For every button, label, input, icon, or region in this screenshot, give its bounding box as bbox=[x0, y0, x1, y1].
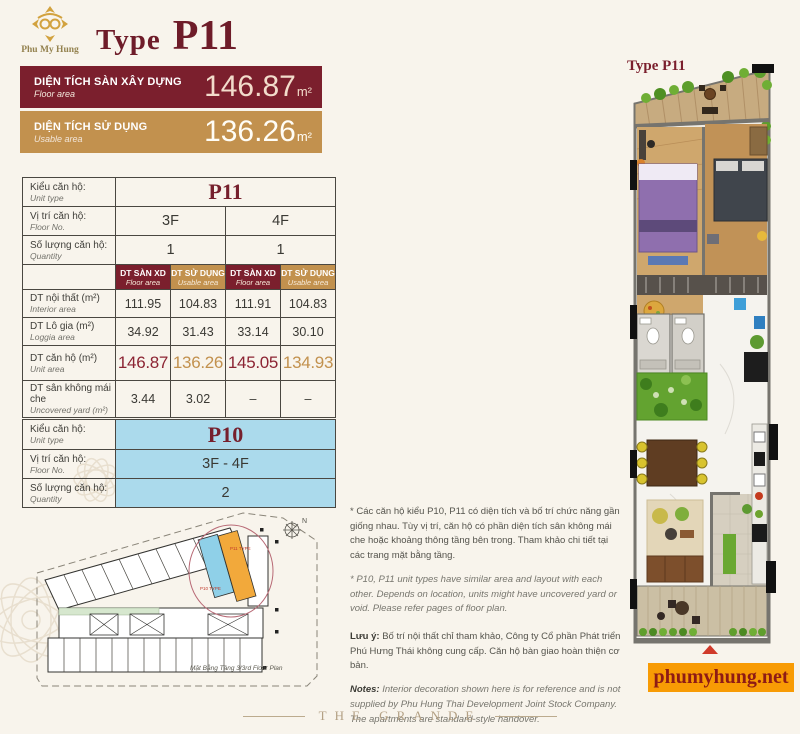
compass-north-label: N bbox=[302, 518, 307, 525]
footer-brand-text: THE GRANDE bbox=[319, 708, 482, 724]
p10-unit-tag: P10 TYPE bbox=[200, 586, 221, 591]
luu-y-paragraph: Lưu ý: Bố trí nội thất chỉ tham khảo, Cô… bbox=[350, 630, 624, 674]
bedside-rug bbox=[648, 256, 688, 265]
brochure-page: Phu My Hung Type P11 DIỆN TÍCH SÀN XÂY D… bbox=[0, 0, 800, 734]
row-label-vi: DT sân không mái che bbox=[30, 383, 111, 405]
desk-chair bbox=[647, 140, 655, 148]
footer-rule-left bbox=[243, 716, 305, 717]
row-label-vi: DT căn hộ (m²) bbox=[30, 353, 111, 364]
unit-type-label-cell: Kiểu căn hộ: Unit type bbox=[23, 178, 116, 207]
loggia-area-3f-usable: 31.43 bbox=[171, 318, 226, 346]
loggia-area-label-cell: DT Lô gia (m²) Loggia area bbox=[23, 318, 116, 346]
kitchen-plants bbox=[723, 534, 736, 574]
p10-floor-cell: 3F - 4F bbox=[116, 450, 336, 479]
col-header-vi: DT SỬ DỤNG bbox=[171, 268, 225, 278]
uncovered-yard-4f-usable: – bbox=[281, 381, 336, 418]
loggia-area-3f-floor: 34.92 bbox=[116, 318, 171, 346]
usable-area-label-en: Usable area bbox=[34, 134, 147, 144]
inner-garden bbox=[637, 373, 707, 420]
table-row: DT căn hộ (m²) Unit area 146.87 136.26 1… bbox=[23, 346, 336, 381]
p10-quantity-cell: 2 bbox=[116, 479, 336, 508]
living-room bbox=[647, 500, 703, 582]
loggia-area-4f-usable: 30.10 bbox=[281, 318, 336, 346]
notes-label: Notes: bbox=[350, 684, 380, 695]
unit-area-3f-floor: 146.87 bbox=[116, 346, 171, 381]
col-header-vi: DT SỬ DỤNG bbox=[281, 268, 335, 278]
interior-area-4f-floor: 111.91 bbox=[226, 290, 281, 318]
uncovered-yard-label-cell: DT sân không mái che Uncovered yard (m²) bbox=[23, 381, 116, 418]
p11-spec-table: Kiểu căn hộ: Unit type P11 Vị trí căn hộ… bbox=[22, 177, 336, 418]
usable-area-value: 136.26 m² bbox=[204, 117, 312, 147]
usable-area-number: 136.26 bbox=[204, 117, 296, 147]
p10-unit-type-value: P10 bbox=[116, 420, 336, 450]
website-link[interactable]: phumyhung.net bbox=[648, 663, 794, 692]
unit-type-label-cell: Kiểu căn hộ: Unit type bbox=[23, 420, 116, 450]
floor-overview-plan: P10 TYPE P11 TYPE N Mặt Bằng Tầng 3/3rd … bbox=[30, 508, 322, 698]
p10-spec-table: Kiểu căn hộ: Unit type P10 Vị trí căn hộ… bbox=[22, 419, 336, 508]
row-label-vi: DT nội thất (m²) bbox=[30, 293, 111, 304]
side-table bbox=[707, 234, 719, 244]
quantity-label-cell: Số lượng căn hộ: Quantity bbox=[23, 479, 116, 508]
note-paragraph-en: * P10, P11 unit types have similar area … bbox=[350, 573, 624, 617]
header-spacer-cell bbox=[23, 265, 116, 290]
entry-arrow bbox=[702, 645, 718, 654]
indoor-plant bbox=[750, 335, 764, 349]
unit-type-label-en: Unit type bbox=[30, 193, 111, 203]
phu-my-hung-emblem-icon bbox=[26, 6, 74, 42]
floor-no-label-vi: Vị trí căn hộ: bbox=[30, 211, 111, 222]
col-header-vi: DT SÀN XD bbox=[226, 268, 280, 278]
row-label-en: Unit area bbox=[30, 364, 111, 374]
quantity-label-vi: Số lượng căn hộ: bbox=[30, 483, 111, 494]
apartment-detail-plan bbox=[630, 64, 782, 664]
sofa bbox=[647, 556, 703, 582]
black-counter bbox=[744, 352, 768, 382]
col-header-vi: DT SÀN XD bbox=[116, 268, 170, 278]
col-header-usable-area-2: DT SỬ DỤNG Usable area bbox=[281, 265, 336, 290]
desk bbox=[639, 130, 646, 160]
floor-no-label-en: Floor No. bbox=[30, 465, 111, 475]
floor-no-label-cell: Vị trí căn hộ: Floor No. bbox=[23, 450, 116, 479]
unit-area-4f-floor: 145.05 bbox=[226, 346, 281, 381]
title-unit-code: P11 bbox=[173, 12, 238, 60]
floor-3f-cell: 3F bbox=[116, 207, 226, 236]
uncovered-yard-3f-floor: 3.44 bbox=[116, 381, 171, 418]
row-label-en: Uncovered yard (m²) bbox=[30, 405, 111, 415]
floor-no-label-vi: Vị trí căn hộ: bbox=[30, 454, 111, 465]
wardrobe bbox=[750, 127, 767, 155]
row-label-en: Loggia area bbox=[30, 332, 111, 342]
building-core bbox=[59, 608, 263, 638]
unit-type-label-vi: Kiểu căn hộ: bbox=[30, 424, 111, 435]
compass-icon bbox=[283, 521, 301, 539]
usable-area-bar: DIỆN TÍCH SỬ DỤNG Usable area 136.26 m² bbox=[20, 111, 322, 153]
table-row: DT nội thất (m²) Interior area 111.95 10… bbox=[23, 290, 336, 318]
floor-no-label-cell: Vị trí căn hộ: Floor No. bbox=[23, 207, 116, 236]
floor-area-value: 146.87 m² bbox=[204, 72, 312, 102]
row-label-vi: DT Lô gia (m²) bbox=[30, 321, 111, 332]
floor-area-label-vi: DIỆN TÍCH SÀN XÂY DỰNG bbox=[34, 76, 182, 88]
usable-area-unit: m² bbox=[297, 130, 312, 143]
quantity-label-en: Quantity bbox=[30, 251, 111, 261]
uncovered-yard-3f-usable: 3.02 bbox=[171, 381, 226, 418]
row-label-en: Interior area bbox=[30, 304, 111, 314]
stool bbox=[757, 231, 767, 241]
quantity-3f-cell: 1 bbox=[116, 236, 226, 265]
bottom-terrace bbox=[637, 586, 767, 636]
loggia-area-4f-floor: 33.14 bbox=[226, 318, 281, 346]
p11-unit-type-value: P11 bbox=[116, 178, 336, 207]
terrace-table bbox=[675, 601, 689, 615]
quantity-4f-cell: 1 bbox=[226, 236, 336, 265]
logo-wordmark: Phu My Hung bbox=[8, 45, 92, 55]
overview-caption: Mặt Bằng Tầng 3/3rd Floor Plan bbox=[190, 663, 283, 672]
bedroom-right bbox=[705, 124, 767, 275]
phu-my-hung-logo: Phu My Hung bbox=[8, 6, 92, 55]
col-header-floor-area-2: DT SÀN XD Floor area bbox=[226, 265, 281, 290]
usable-area-label-vi: DIỆN TÍCH SỬ DỤNG bbox=[34, 121, 147, 133]
page-title: Type P11 bbox=[96, 12, 238, 60]
bathrooms bbox=[637, 314, 704, 373]
col-header-en: Usable area bbox=[171, 278, 225, 287]
unit-area-label-cell: DT căn hộ (m²) Unit area bbox=[23, 346, 116, 381]
col-header-en: Floor area bbox=[116, 278, 170, 287]
quantity-label-en: Quantity bbox=[30, 494, 111, 504]
luu-y-label: Lưu ý: bbox=[350, 631, 380, 642]
floor-no-label-en: Floor No. bbox=[30, 222, 111, 232]
note-paragraph-vi: * Các căn hộ kiểu P10, P11 có diện tích … bbox=[350, 505, 624, 564]
interior-area-3f-floor: 111.95 bbox=[116, 290, 171, 318]
table-row: DT sân không mái che Uncovered yard (m²)… bbox=[23, 381, 336, 418]
interior-area-4f-usable: 104.83 bbox=[281, 290, 336, 318]
unit-type-label-vi: Kiểu căn hộ: bbox=[30, 182, 111, 193]
blue-chair bbox=[734, 298, 746, 310]
col-header-floor-area-1: DT SÀN XD Floor area bbox=[116, 265, 171, 290]
quantity-label-cell: Số lượng căn hộ: Quantity bbox=[23, 236, 116, 265]
unit-area-4f-usable: 134.93 bbox=[281, 346, 336, 381]
wardrobe-band bbox=[637, 275, 767, 295]
floor-area-bar: DIỆN TÍCH SÀN XÂY DỰNG Floor area 146.87… bbox=[20, 66, 322, 108]
interior-area-3f-usable: 104.83 bbox=[171, 290, 226, 318]
bedroom-left bbox=[637, 127, 703, 275]
floor-4f-cell: 4F bbox=[226, 207, 336, 236]
footer-brand: THE GRANDE bbox=[0, 708, 800, 724]
unit-type-label-en: Unit type bbox=[30, 435, 111, 445]
floor-area-number: 146.87 bbox=[204, 72, 296, 102]
uncovered-yard-4f-floor: – bbox=[226, 381, 281, 418]
luu-y-text: Bố trí nội thất chỉ tham khảo, Công ty C… bbox=[350, 631, 620, 671]
title-prefix: Type bbox=[96, 24, 161, 57]
unit-area-3f-usable: 136.26 bbox=[171, 346, 226, 381]
footer-rule-right bbox=[495, 716, 557, 717]
blue-stool bbox=[754, 316, 765, 329]
quantity-label-vi: Số lượng căn hộ: bbox=[30, 240, 111, 251]
dining-area bbox=[637, 440, 707, 486]
col-header-en: Usable area bbox=[281, 278, 335, 287]
interior-area-label-cell: DT nội thất (m²) Interior area bbox=[23, 290, 116, 318]
floor-area-unit: m² bbox=[297, 85, 312, 98]
p11-unit-tag: P11 TYPE bbox=[230, 546, 251, 551]
floor-area-label-en: Floor area bbox=[34, 89, 182, 99]
col-header-en: Floor area bbox=[226, 278, 280, 287]
table-row: DT Lô gia (m²) Loggia area 34.92 31.43 3… bbox=[23, 318, 336, 346]
col-header-usable-area-1: DT SỬ DỤNG Usable area bbox=[171, 265, 226, 290]
notes-block: * Các căn hộ kiểu P10, P11 có diện tích … bbox=[350, 505, 624, 734]
